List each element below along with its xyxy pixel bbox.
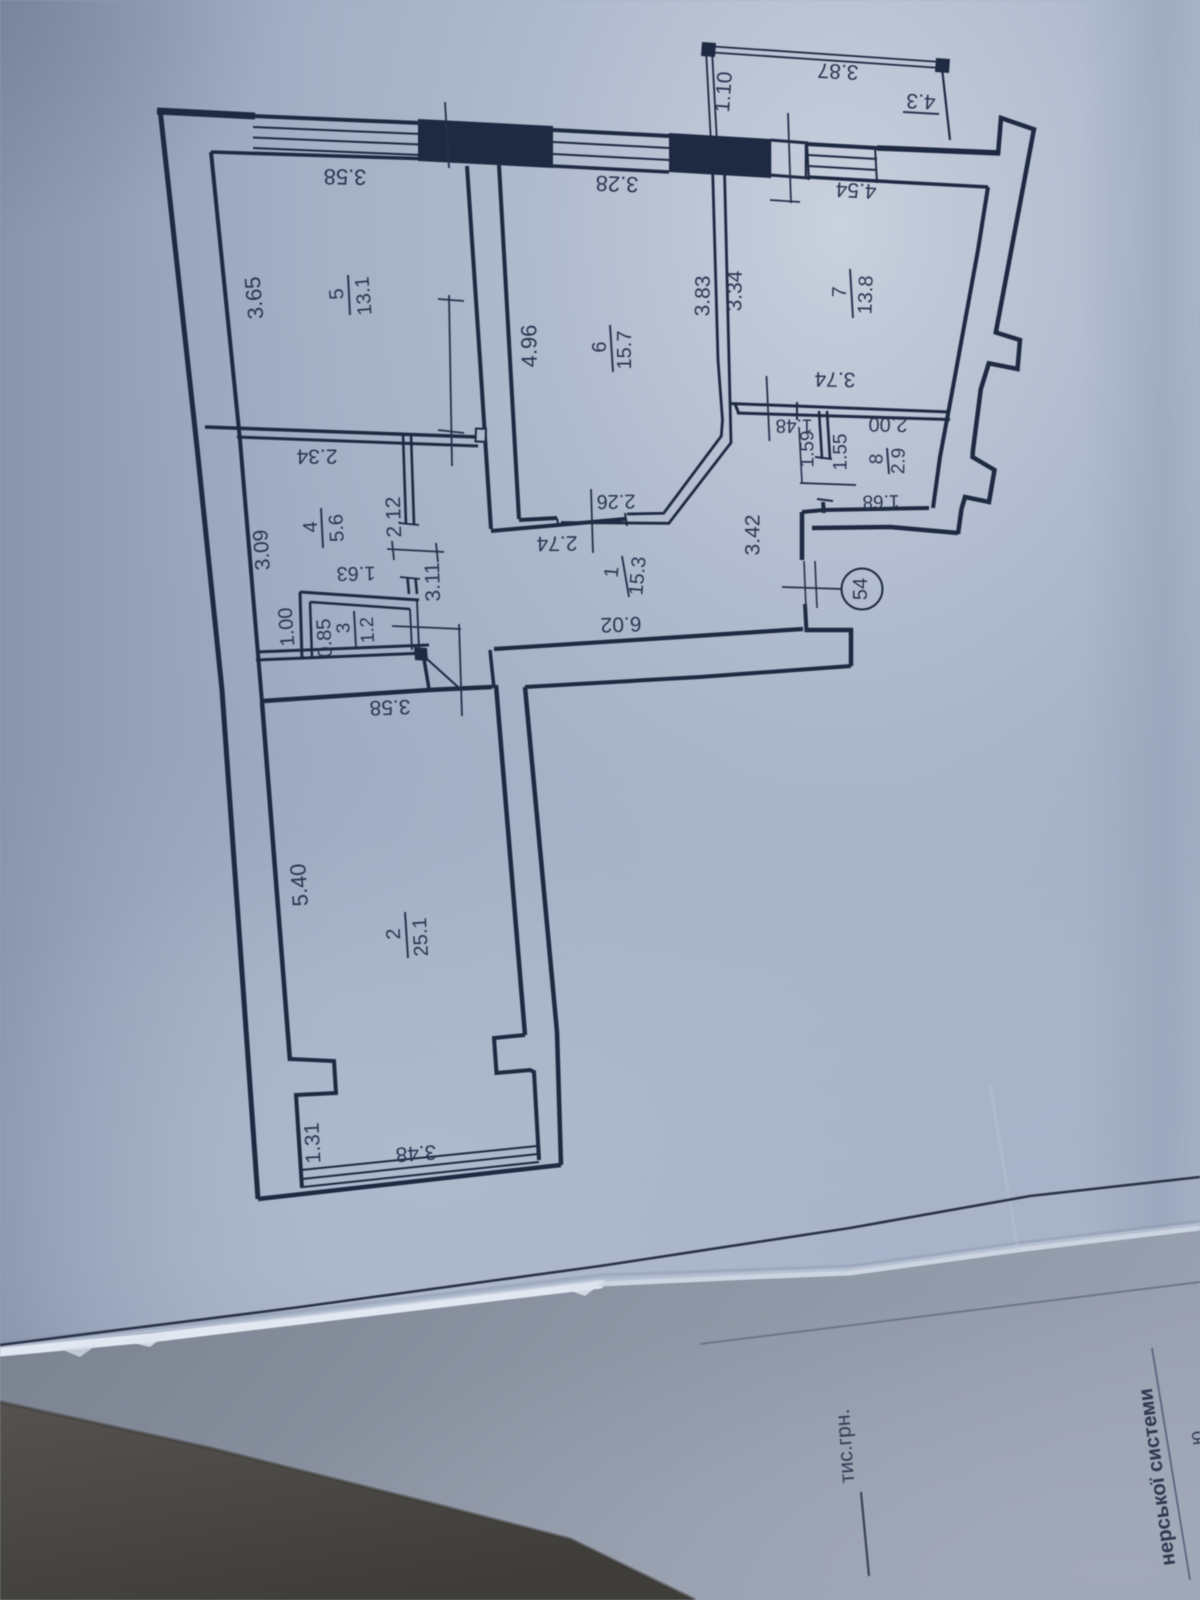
- svg-text:3.48: 3.48: [395, 1140, 437, 1166]
- svg-text:5: 5: [326, 287, 349, 300]
- svg-text:2.9: 2.9: [888, 448, 909, 475]
- svg-text:15.3: 15.3: [625, 556, 650, 597]
- svg-text:2.34: 2.34: [296, 445, 337, 468]
- svg-text:3.83: 3.83: [691, 275, 715, 316]
- svg-text:3.28: 3.28: [595, 171, 639, 197]
- svg-text:4.54: 4.54: [835, 177, 877, 202]
- svg-text:2.12: 2.12: [382, 496, 406, 538]
- svg-text:13.8: 13.8: [854, 275, 877, 315]
- svg-text:2.00: 2.00: [868, 413, 907, 436]
- svg-text:8: 8: [866, 454, 887, 465]
- svg-text:4.96: 4.96: [516, 324, 542, 367]
- svg-text:2.74: 2.74: [536, 531, 578, 555]
- svg-text:1: 1: [601, 565, 624, 578]
- svg-text:ю: ю: [1186, 1430, 1200, 1447]
- svg-text:7: 7: [829, 286, 851, 298]
- svg-text:13.1: 13.1: [351, 276, 376, 317]
- svg-text:1.31: 1.31: [300, 1122, 325, 1164]
- svg-text:1.2: 1.2: [357, 616, 379, 643]
- svg-text:25.1: 25.1: [409, 917, 433, 957]
- svg-text:3.34: 3.34: [723, 270, 747, 312]
- svg-text:5.40: 5.40: [285, 863, 313, 907]
- svg-text:1.63: 1.63: [336, 562, 375, 585]
- svg-text:3.74: 3.74: [814, 367, 856, 391]
- svg-text:3.58: 3.58: [369, 695, 411, 719]
- svg-text:1.68: 1.68: [862, 490, 899, 512]
- svg-text:5.6: 5.6: [325, 514, 348, 543]
- svg-text:3.65: 3.65: [240, 276, 269, 321]
- svg-text:2.26: 2.26: [596, 490, 635, 513]
- svg-text:3.09: 3.09: [249, 529, 275, 571]
- svg-text:1.55: 1.55: [831, 434, 852, 471]
- svg-text:2: 2: [383, 928, 406, 940]
- svg-text:1.00: 1.00: [275, 607, 300, 647]
- svg-text:6.02: 6.02: [600, 612, 642, 636]
- svg-text:4: 4: [300, 521, 323, 533]
- svg-text:3: 3: [333, 622, 355, 634]
- svg-text:3.58: 3.58: [323, 164, 366, 190]
- svg-text:15.7: 15.7: [614, 331, 636, 370]
- svg-text:1.59: 1.59: [798, 431, 819, 468]
- svg-text:6: 6: [589, 341, 611, 352]
- svg-text:3.11: 3.11: [421, 562, 445, 602]
- svg-text:3.87: 3.87: [817, 58, 859, 83]
- svg-text:4.3: 4.3: [906, 89, 936, 113]
- svg-text:54: 54: [850, 578, 872, 600]
- svg-text:1.10: 1.10: [711, 71, 737, 113]
- svg-text:3.42: 3.42: [742, 515, 765, 556]
